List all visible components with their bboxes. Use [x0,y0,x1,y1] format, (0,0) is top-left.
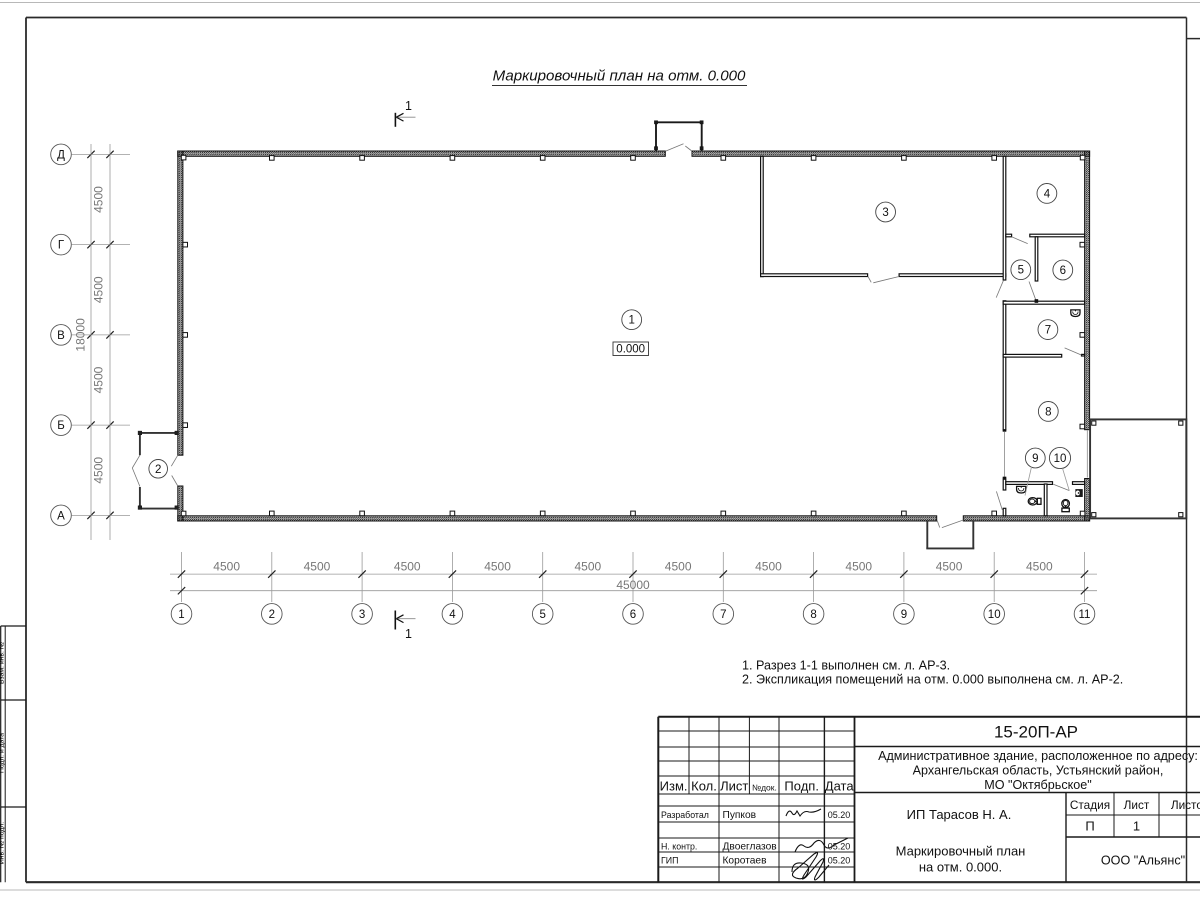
svg-text:1: 1 [1133,819,1140,834]
svg-text:Подп. и дата: Подп. и дата [0,733,6,773]
svg-text:05.20: 05.20 [828,856,851,866]
svg-text:05.20: 05.20 [828,810,851,820]
svg-text:Листов: Листов [1171,798,1200,812]
svg-text:2: 2 [155,464,161,476]
svg-text:4500: 4500 [936,560,963,574]
svg-text:9: 9 [901,609,907,621]
svg-text:Двоеглазов: Двоеглазов [723,842,777,853]
svg-text:Подп.: Подп. [784,779,819,794]
svg-text:1. Разрез 1-1 выполнен см. л.: 1. Разрез 1-1 выполнен см. л. АР-3. [742,659,950,673]
svg-text:Дата: Дата [825,779,855,794]
svg-text:4500: 4500 [394,560,421,574]
svg-text:1: 1 [628,315,634,327]
svg-text:5: 5 [1018,265,1024,277]
svg-text:9: 9 [1032,453,1038,465]
svg-text:Кол.: Кол. [691,779,717,794]
svg-text:1: 1 [405,627,412,641]
svg-text:Административное здание, распо: Административное здание, расположенное п… [878,749,1198,763]
svg-text:45000: 45000 [616,578,650,592]
svg-text:7: 7 [1045,325,1051,337]
svg-text:Маркировочный план: Маркировочный план [896,843,1026,858]
svg-text:4: 4 [1044,188,1051,200]
svg-text:6: 6 [1060,265,1066,277]
svg-text:Н. контр.: Н. контр. [661,842,697,852]
svg-text:4500: 4500 [304,560,331,574]
svg-text:8: 8 [1045,406,1051,418]
svg-text:Взам. инв. №: Взам. инв. № [0,642,6,684]
svg-text:В: В [57,330,65,342]
svg-text:10: 10 [1054,453,1067,465]
svg-text:ГИП: ГИП [661,856,678,866]
svg-text:2. Экспликация помещений на от: 2. Экспликация помещений на отм. 0.000 в… [742,673,1123,687]
svg-text:Пупков: Пупков [723,810,757,821]
svg-text:4500: 4500 [755,560,782,574]
svg-text:Лист: Лист [1124,798,1150,812]
svg-text:МО "Октябрьское": МО "Октябрьское" [984,778,1092,792]
svg-text:4: 4 [449,609,456,621]
svg-text:А: А [57,510,65,522]
svg-text:10: 10 [988,609,1001,621]
svg-text:1: 1 [178,609,184,621]
svg-text:Лист: Лист [720,779,748,794]
svg-text:4500: 4500 [484,560,511,574]
svg-text:П: П [1085,819,1094,834]
svg-text:№док.: №док. [752,783,777,793]
svg-text:15-20П-АР: 15-20П-АР [994,723,1078,742]
svg-text:Маркировочный план на отм. 0.0: Маркировочный план на отм. 0.000 [493,68,746,85]
svg-text:Изм.: Изм. [660,779,688,794]
svg-text:4500: 4500 [574,560,601,574]
svg-text:7: 7 [720,609,726,621]
svg-text:11: 11 [1079,609,1091,621]
svg-text:1: 1 [405,99,412,113]
svg-text:8: 8 [810,609,816,621]
svg-text:Разработал: Разработал [661,810,709,820]
svg-text:Стадия: Стадия [1070,798,1110,812]
svg-text:Архангельская область, Устьянс: Архангельская область, Устьянский район, [913,764,1164,778]
svg-text:3: 3 [882,207,888,219]
svg-text:4500: 4500 [665,560,692,574]
svg-text:0.000: 0.000 [616,344,645,356]
svg-text:4500: 4500 [92,276,106,303]
svg-text:4500: 4500 [92,457,106,484]
svg-text:18000: 18000 [74,318,88,352]
svg-text:4500: 4500 [1026,560,1053,574]
svg-text:Г: Г [58,240,65,252]
svg-text:ООО "Альянс": ООО "Альянс" [1101,854,1185,868]
svg-text:Инв. № подл.: Инв. № подл. [0,822,6,864]
svg-text:3: 3 [359,609,365,621]
svg-text:ИП Тарасов Н. А.: ИП Тарасов Н. А. [907,807,1012,822]
svg-text:4500: 4500 [92,366,106,393]
svg-text:на отм. 0.000.: на отм. 0.000. [919,859,1002,874]
svg-text:6: 6 [630,609,636,621]
svg-text:4500: 4500 [92,186,106,213]
svg-text:5: 5 [539,609,545,621]
svg-text:4500: 4500 [845,560,872,574]
svg-text:2: 2 [269,609,275,621]
svg-text:4500: 4500 [213,560,240,574]
svg-text:Д: Д [57,149,65,161]
svg-text:Коротаев: Коротаев [723,856,767,867]
svg-text:Б: Б [57,420,65,432]
